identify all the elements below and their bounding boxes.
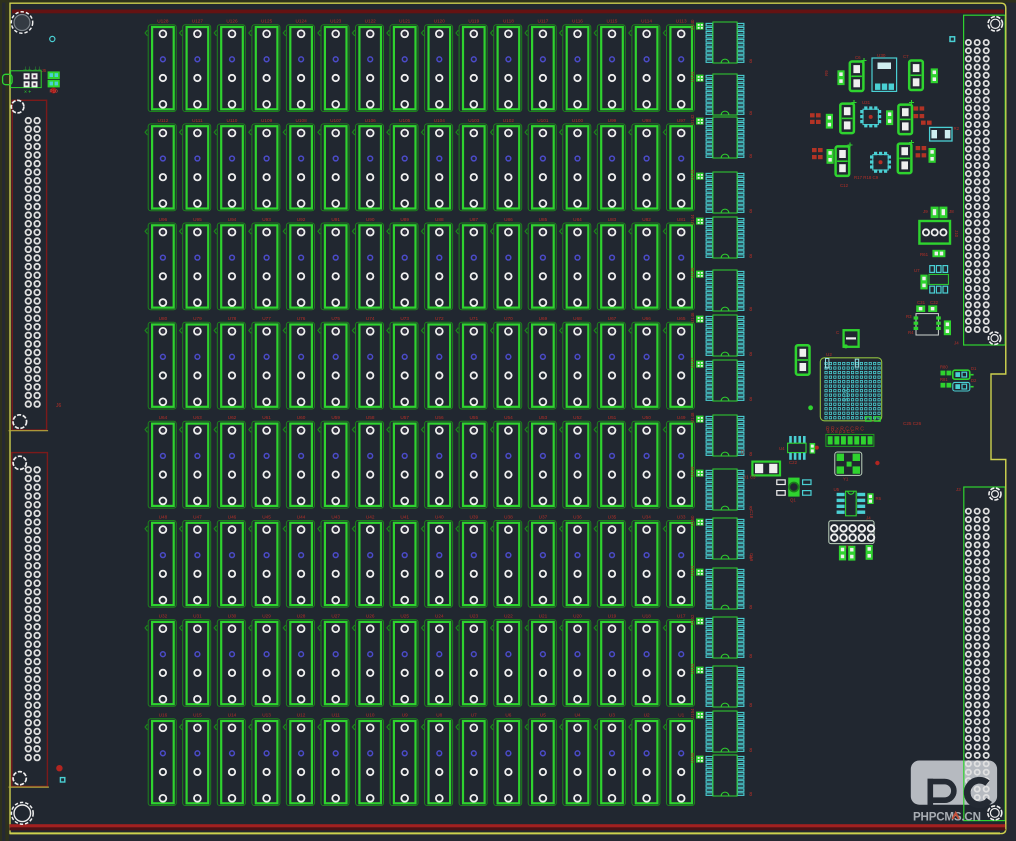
svg-text:Y1: Y1 [843, 477, 849, 482]
svg-text:U21: U21 [539, 614, 548, 619]
svg-text:U120: U120 [434, 19, 446, 24]
svg-text:U5: U5 [540, 713, 546, 718]
svg-text:U2: U2 [826, 352, 832, 357]
svg-text:U63: U63 [193, 415, 202, 420]
svg-text:C6: C6 [855, 55, 861, 60]
svg-text:U34: U34 [642, 514, 651, 519]
svg-text:U62: U62 [228, 415, 237, 420]
svg-text:U154: U154 [690, 708, 695, 719]
svg-text:⊥⊥ ⊥⊥: ⊥⊥ ⊥⊥ [23, 66, 42, 72]
svg-text:U118: U118 [503, 19, 514, 24]
svg-text:5 X 8 p 3 C C: 5 X 8 p 3 C C [827, 429, 855, 434]
svg-text:U38: U38 [504, 514, 513, 519]
svg-text:R4: R4 [908, 330, 914, 335]
svg-text:U81: U81 [677, 217, 686, 222]
svg-text:U16: U16 [159, 713, 168, 718]
svg-text:U128: U128 [157, 19, 169, 24]
svg-text:U41: U41 [400, 514, 409, 519]
svg-text:PHPCMS.CN: PHPCMS.CN [913, 811, 981, 824]
svg-text:U150: U150 [690, 515, 695, 526]
svg-text:U126: U126 [226, 19, 238, 24]
svg-text:U87: U87 [469, 217, 478, 222]
svg-text:U147: U147 [690, 357, 695, 368]
svg-text:U20: U20 [573, 614, 582, 619]
svg-text:8: 8 [749, 352, 752, 358]
svg-text:U43: U43 [331, 514, 340, 519]
svg-text:R61: R61 [920, 252, 929, 257]
svg-text:R80: R80 [940, 365, 948, 370]
svg-text:U36: U36 [573, 514, 582, 519]
svg-text:U22: U22 [504, 614, 513, 619]
svg-text:U19: U19 [608, 614, 617, 619]
svg-text:U151: U151 [690, 565, 695, 576]
svg-text:U2: U2 [644, 713, 650, 718]
svg-text:U119: U119 [468, 19, 479, 24]
svg-text:U3: U3 [609, 713, 615, 718]
svg-text:U64: U64 [159, 415, 168, 420]
svg-text:U60: U60 [297, 415, 306, 420]
svg-text:U49: U49 [677, 415, 686, 420]
svg-text:U61: U61 [262, 415, 271, 420]
svg-text:U28: U28 [297, 614, 306, 619]
svg-text:U99: U99 [608, 118, 617, 123]
svg-text:R6: R6 [876, 496, 882, 501]
svg-text:U4: U4 [779, 446, 785, 451]
svg-text:× +: × + [24, 90, 31, 96]
svg-text:U140: U140 [690, 19, 695, 30]
svg-text:U103: U103 [468, 118, 480, 123]
svg-text:U1 C3: U1 C3 [743, 475, 756, 480]
svg-text:8: 8 [749, 748, 752, 754]
svg-text:U7: U7 [914, 268, 920, 273]
svg-text:U27: U27 [331, 614, 340, 619]
svg-text:U7: U7 [471, 713, 477, 718]
svg-text:U15: U15 [193, 713, 202, 718]
svg-text:U149: U149 [690, 466, 695, 477]
svg-text:U124: U124 [295, 19, 307, 24]
svg-text:U78: U78 [228, 316, 237, 321]
svg-text:S12C: S12C [844, 386, 850, 402]
svg-text:J3: J3 [956, 487, 961, 492]
svg-text:U111: U111 [192, 118, 203, 123]
svg-text:U9: U9 [402, 713, 408, 718]
svg-text:U108: U108 [295, 118, 307, 123]
svg-text:J4: J4 [866, 516, 871, 521]
svg-text:U47: U47 [193, 514, 202, 519]
svg-text:U144: U144 [690, 214, 695, 225]
svg-text:U26: U26 [366, 614, 375, 619]
svg-text:U93: U93 [262, 217, 271, 222]
svg-text:U117: U117 [537, 19, 548, 24]
svg-text:C31: C31 [917, 300, 926, 305]
svg-text:U112: U112 [157, 118, 168, 123]
svg-text:C2: C2 [740, 449, 745, 455]
svg-text:U70: U70 [504, 316, 513, 321]
svg-text:8: 8 [749, 397, 752, 403]
svg-text:C19: C19 [749, 553, 754, 562]
svg-text:U104: U104 [434, 118, 446, 123]
svg-text:R9: R9 [824, 70, 829, 76]
svg-text:U72: U72 [435, 316, 444, 321]
svg-text:J8: J8 [949, 209, 954, 214]
svg-text:U142: U142 [690, 114, 695, 125]
svg-text:U52: U52 [573, 415, 582, 420]
svg-text:U25: U25 [400, 614, 409, 619]
svg-text:U17: U17 [677, 614, 686, 619]
svg-text:8: 8 [749, 792, 752, 798]
svg-text:P10: P10 [50, 88, 59, 93]
svg-text:U55: U55 [469, 415, 478, 420]
svg-text:U39: U39 [469, 514, 478, 519]
svg-text:U53: U53 [539, 415, 548, 420]
svg-text:D1: D1 [971, 366, 977, 371]
svg-text:8: 8 [749, 452, 752, 458]
svg-text:R3: R3 [906, 314, 912, 319]
svg-text:U14: U14 [228, 713, 237, 718]
svg-text:U33: U33 [677, 514, 686, 519]
svg-text:U65: U65 [677, 316, 686, 321]
svg-text:U79: U79 [193, 316, 202, 321]
svg-text:U143: U143 [690, 169, 695, 180]
svg-text:U46: U46 [228, 514, 237, 519]
svg-text:U29: U29 [262, 614, 271, 619]
svg-text:U8: U8 [436, 713, 442, 718]
svg-text:U31: U31 [193, 614, 202, 619]
svg-text:U109: U109 [261, 118, 273, 123]
svg-text:U71: U71 [469, 316, 478, 321]
svg-text:U32: U32 [159, 614, 168, 619]
svg-text:U45: U45 [262, 514, 271, 519]
svg-text:R17 R18 C9: R17 R18 C9 [854, 175, 879, 180]
svg-text:D2: D2 [971, 378, 977, 383]
svg-text:C32: C32 [930, 300, 939, 305]
svg-text:U114: U114 [641, 19, 652, 24]
svg-text:J5: J5 [42, 68, 47, 73]
svg-text:U90: U90 [366, 217, 375, 222]
svg-text:U30: U30 [877, 53, 886, 58]
svg-text:8: 8 [749, 209, 752, 215]
svg-text:U48: U48 [159, 514, 168, 519]
svg-text:U30: U30 [228, 614, 237, 619]
svg-text:U23: U23 [469, 614, 478, 619]
svg-text:8: 8 [749, 254, 752, 260]
svg-text:U50: U50 [642, 415, 651, 420]
svg-text:C12: C12 [840, 183, 849, 188]
svg-text:U146: U146 [690, 312, 695, 323]
svg-text:C18: C18 [749, 510, 754, 519]
svg-text:U125: U125 [261, 19, 273, 24]
svg-text:U127: U127 [192, 19, 204, 24]
svg-text:U113: U113 [676, 19, 687, 24]
svg-text:U153: U153 [690, 663, 695, 674]
svg-text:U115: U115 [607, 19, 618, 24]
svg-text:U73: U73 [400, 316, 409, 321]
svg-text:U4: U4 [575, 713, 581, 718]
svg-text:U84: U84 [573, 217, 582, 222]
svg-text:U91: U91 [331, 217, 340, 222]
svg-text:U100: U100 [572, 118, 584, 123]
svg-text:U1: U1 [678, 713, 684, 718]
svg-text:U56: U56 [435, 415, 444, 420]
svg-text:U82: U82 [642, 217, 651, 222]
svg-text:U96: U96 [159, 217, 168, 222]
svg-text:C: C [836, 330, 839, 335]
svg-text:U123: U123 [330, 19, 342, 24]
svg-text:U68: U68 [573, 316, 582, 321]
svg-text:U152: U152 [690, 614, 695, 625]
svg-text:U6: U6 [505, 713, 511, 718]
svg-text:U42: U42 [366, 514, 375, 519]
svg-text:U101: U101 [537, 118, 549, 123]
svg-text:U155: U155 [690, 752, 695, 763]
svg-text:U121: U121 [399, 19, 411, 24]
svg-text:Q1: Q1 [790, 498, 796, 503]
svg-text:U11: U11 [332, 713, 341, 718]
svg-text:U95: U95 [193, 217, 202, 222]
svg-text:8: 8 [749, 703, 752, 709]
svg-text:J4: J4 [954, 341, 959, 346]
svg-text:U40: U40 [435, 514, 444, 519]
svg-text:U80: U80 [159, 316, 168, 321]
svg-text:U58: U58 [366, 415, 375, 420]
svg-text:U145: U145 [690, 267, 695, 278]
svg-text:U148: U148 [690, 412, 695, 423]
svg-text:U44: U44 [297, 514, 306, 519]
svg-text:U97: U97 [677, 118, 686, 123]
svg-text:U69: U69 [539, 316, 548, 321]
svg-text:U98: U98 [642, 118, 651, 123]
svg-text:U67: U67 [608, 316, 617, 321]
svg-text:U10: U10 [366, 713, 375, 718]
svg-text:C25 C26: C25 C26 [903, 421, 922, 426]
svg-text:U106: U106 [365, 118, 377, 123]
svg-text:U24: U24 [435, 614, 444, 619]
svg-text:U92: U92 [297, 217, 306, 222]
svg-text:J9: J9 [923, 209, 928, 214]
svg-text:U141: U141 [690, 71, 695, 82]
svg-text:U5: U5 [834, 487, 840, 492]
svg-text:8: 8 [749, 307, 752, 313]
svg-text:8: 8 [749, 111, 752, 117]
svg-text:8: 8 [749, 154, 752, 160]
svg-text:J6: J6 [56, 403, 62, 409]
svg-text:U18: U18 [642, 614, 651, 619]
svg-text:U110: U110 [227, 118, 238, 123]
svg-text:U94: U94 [228, 217, 237, 222]
svg-text:U35: U35 [608, 514, 617, 519]
svg-text:U74: U74 [366, 316, 375, 321]
svg-text:U116: U116 [572, 19, 583, 24]
svg-text:U57: U57 [400, 415, 409, 420]
svg-text:U88: U88 [435, 217, 444, 222]
svg-text:U13: U13 [262, 713, 271, 718]
svg-text:U76: U76 [297, 316, 306, 321]
svg-text:R81: R81 [940, 377, 948, 382]
svg-text:J10: J10 [954, 230, 959, 238]
svg-text:U75: U75 [331, 316, 340, 321]
svg-text:U31: U31 [862, 100, 871, 105]
svg-text:8: 8 [749, 59, 752, 65]
svg-text:R2: R2 [954, 126, 960, 131]
svg-text:U59: U59 [331, 415, 340, 420]
svg-text:U102: U102 [503, 118, 515, 123]
svg-text:U66: U66 [642, 316, 651, 321]
svg-text:U77: U77 [262, 316, 271, 321]
svg-text:U12: U12 [297, 713, 306, 718]
svg-text:U37: U37 [539, 514, 548, 519]
svg-text:U89: U89 [400, 217, 409, 222]
svg-text:U86: U86 [504, 217, 513, 222]
svg-text:U105: U105 [399, 118, 411, 123]
svg-text:U122: U122 [365, 19, 377, 24]
svg-text:8: 8 [749, 605, 752, 611]
svg-text:U51: U51 [608, 415, 617, 420]
svg-text:U54: U54 [504, 415, 513, 420]
svg-text:U85: U85 [539, 217, 548, 222]
svg-text:C22: C22 [789, 460, 798, 465]
svg-text:8: 8 [749, 654, 752, 660]
svg-text:U107: U107 [330, 118, 342, 123]
svg-text:C7: C7 [903, 54, 909, 59]
svg-text:U83: U83 [608, 217, 617, 222]
